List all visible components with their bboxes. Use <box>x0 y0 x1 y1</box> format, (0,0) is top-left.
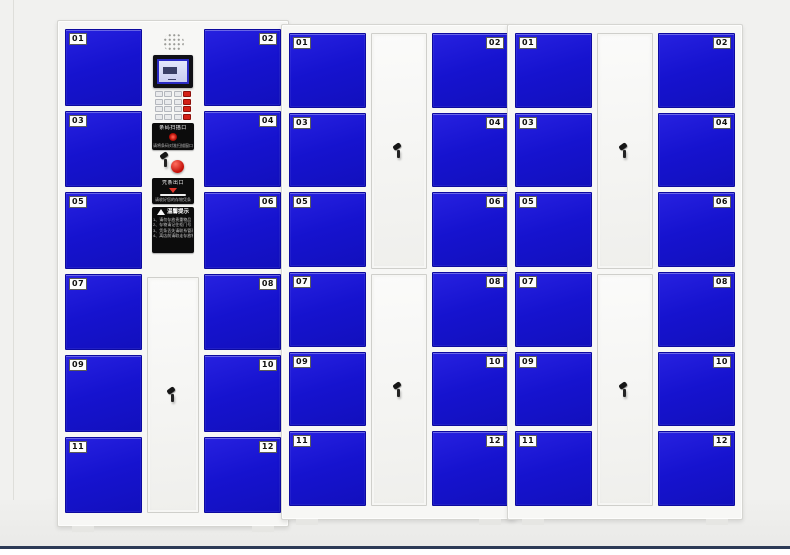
locker-door-04[interactable]: 04 <box>658 113 735 188</box>
locker-door-09[interactable]: 09 <box>65 355 142 432</box>
door-number-tag: 11 <box>293 435 311 447</box>
keypad <box>155 91 192 120</box>
locker-door-03[interactable]: 03 <box>65 111 142 188</box>
left-door-column: 01 03 05 07 09 11 <box>289 33 366 506</box>
door-number-tag: 09 <box>69 359 87 371</box>
lower-service-door[interactable] <box>371 274 427 507</box>
right-door-column: 02 04 06 08 10 12 <box>204 29 281 513</box>
receipt-outlet-label: 凭条出口 请收好您的存物凭条 <box>152 178 194 204</box>
control-column: 条码扫描口 请将条码对准扫描窗口 凭条出口 请收好您的存物凭条 <box>147 29 199 513</box>
speaker-icon <box>163 33 184 52</box>
keypad-key[interactable] <box>164 114 172 120</box>
locker-door-11[interactable]: 11 <box>515 431 592 506</box>
locker-cabinet-1: 01 03 05 07 09 11 <box>57 20 289 527</box>
door-number-tag: 06 <box>713 196 731 208</box>
door-number-tag: 02 <box>713 37 731 49</box>
keypad-key-red[interactable] <box>183 91 191 97</box>
keypad-key[interactable] <box>174 106 182 112</box>
keypad-key[interactable] <box>155 114 163 120</box>
right-door-column: 02 04 06 08 10 12 <box>658 33 735 506</box>
keypad-key[interactable] <box>155 106 163 112</box>
key-lock[interactable] <box>618 383 630 399</box>
tips-line: 4、离店前请取走存放物品 <box>153 233 193 239</box>
door-number-tag: 11 <box>69 441 87 453</box>
left-door-column: 01 03 05 07 09 11 <box>65 29 142 513</box>
lock-and-button-row <box>147 153 199 175</box>
display-screen <box>153 55 193 88</box>
locker-door-07[interactable]: 07 <box>289 272 366 347</box>
keypad-key-red[interactable] <box>183 99 191 105</box>
scanner-glow-icon <box>169 133 177 141</box>
door-number-tag: 04 <box>486 117 504 129</box>
locker-door-09[interactable]: 09 <box>515 352 592 427</box>
locker-door-07[interactable]: 07 <box>65 274 142 351</box>
door-number-tag: 07 <box>69 278 87 290</box>
keypad-key[interactable] <box>155 99 163 105</box>
screen-content <box>157 59 189 84</box>
locker-door-10[interactable]: 10 <box>432 352 509 427</box>
door-number-tag: 08 <box>713 276 731 288</box>
door-number-tag: 11 <box>519 435 537 447</box>
keypad-key[interactable] <box>174 91 182 97</box>
barcode-scanner-label: 条码扫描口 请将条码对准扫描窗口 <box>152 123 194 150</box>
keypad-key[interactable] <box>164 99 172 105</box>
receipt-sub-text: 请收好您的存物凭条 <box>153 197 193 202</box>
tips-header: 温馨提示 <box>153 209 193 216</box>
receipt-slot <box>160 194 186 196</box>
door-number-tag: 02 <box>259 33 277 45</box>
locker-door-06[interactable]: 06 <box>432 192 509 267</box>
keypad-key[interactable] <box>174 114 182 120</box>
upper-service-door[interactable] <box>597 33 653 269</box>
service-column <box>371 33 427 506</box>
locker-door-02[interactable]: 02 <box>204 29 281 106</box>
locker-door-12[interactable]: 12 <box>204 437 281 514</box>
locker-door-08[interactable]: 08 <box>432 272 509 347</box>
door-grid: 01 03 05 07 09 11 02 04 06 08 10 12 <box>515 33 735 506</box>
product-photo: 01 03 05 07 09 11 <box>0 0 790 555</box>
locker-door-06[interactable]: 06 <box>658 192 735 267</box>
keypad-key[interactable] <box>164 106 172 112</box>
door-number-tag: 10 <box>259 359 277 371</box>
locker-door-05[interactable]: 05 <box>289 192 366 267</box>
door-number-tag: 12 <box>259 441 277 453</box>
arrow-down-icon <box>169 188 177 193</box>
locker-door-08[interactable]: 08 <box>658 272 735 347</box>
door-grid: 01 03 05 07 09 11 <box>65 29 281 513</box>
door-number-tag: 04 <box>713 117 731 129</box>
locker-door-02[interactable]: 02 <box>658 33 735 108</box>
door-number-tag: 01 <box>69 33 87 45</box>
locker-door-03[interactable]: 03 <box>289 113 366 188</box>
door-number-tag: 12 <box>486 435 504 447</box>
locker-door-05[interactable]: 05 <box>515 192 592 267</box>
bottom-white-strip <box>0 549 790 555</box>
key-lock[interactable] <box>166 388 178 404</box>
door-number-tag: 02 <box>486 37 504 49</box>
locker-door-03[interactable]: 03 <box>515 113 592 188</box>
door-number-tag: 10 <box>713 356 731 368</box>
tips-title: 温馨提示 <box>167 209 189 216</box>
key-lock[interactable] <box>392 383 404 399</box>
door-number-tag: 01 <box>293 37 311 49</box>
door-number-tag: 07 <box>519 276 537 288</box>
receipt-label-text: 凭条出口 <box>153 180 193 186</box>
keypad-key[interactable] <box>164 91 172 97</box>
door-number-tag: 06 <box>259 196 277 208</box>
locker-cabinet-2: 01 03 05 07 09 11 02 04 06 08 10 12 <box>281 24 516 520</box>
key-lock[interactable] <box>392 144 404 160</box>
door-number-tag: 10 <box>486 356 504 368</box>
locker-door-08[interactable]: 08 <box>204 274 281 351</box>
door-number-tag: 04 <box>259 115 277 127</box>
tips-label: 温馨提示 1、请勿存放贵重物品 2、存物请记住柜门号 3、凭条丢失请联系管理员 … <box>152 207 194 253</box>
locker-door-12[interactable]: 12 <box>432 431 509 506</box>
keypad-key-red[interactable] <box>183 114 191 120</box>
locker-door-01[interactable]: 01 <box>289 33 366 108</box>
locker-door-10[interactable]: 10 <box>204 355 281 432</box>
key-lock[interactable] <box>618 144 630 160</box>
door-number-tag: 05 <box>69 196 87 208</box>
keypad-key-red[interactable] <box>183 106 191 112</box>
lower-service-door[interactable] <box>597 274 653 507</box>
door-number-tag: 09 <box>519 356 537 368</box>
door-number-tag: 07 <box>293 276 311 288</box>
door-number-tag: 08 <box>486 276 504 288</box>
door-number-tag: 03 <box>519 117 537 129</box>
warning-triangle-icon <box>157 209 165 215</box>
right-door-column: 02 04 06 08 10 12 <box>432 33 509 506</box>
control-panel: 条码扫描口 请将条码对准扫描窗口 凭条出口 请收好您的存物凭条 <box>147 29 199 272</box>
tips-line: 2、存物请记住柜门号 <box>153 222 193 228</box>
locker-door-02[interactable]: 02 <box>432 33 509 108</box>
locker-door-06[interactable]: 06 <box>204 192 281 269</box>
door-number-tag: 12 <box>713 435 731 447</box>
door-number-tag: 01 <box>519 37 537 49</box>
locker-cabinet-3: 01 03 05 07 09 11 02 04 06 08 10 12 <box>507 24 743 520</box>
upper-service-door[interactable] <box>371 33 427 269</box>
locker-door-10[interactable]: 10 <box>658 352 735 427</box>
door-number-tag: 09 <box>293 356 311 368</box>
left-door-column: 01 03 05 07 09 11 <box>515 33 592 506</box>
backdrop-edge-line <box>13 0 14 506</box>
locker-door-04[interactable]: 04 <box>432 113 509 188</box>
door-grid: 01 03 05 07 09 11 02 04 06 08 10 12 <box>289 33 508 506</box>
locker-door-01[interactable]: 01 <box>515 33 592 108</box>
keypad-key[interactable] <box>155 91 163 97</box>
locker-door-12[interactable]: 12 <box>658 431 735 506</box>
locker-door-01[interactable]: 01 <box>65 29 142 106</box>
keypad-key[interactable] <box>174 99 182 105</box>
door-number-tag: 05 <box>519 196 537 208</box>
emergency-button[interactable] <box>171 160 184 173</box>
scanner-label-text: 条码扫描口 <box>153 125 193 131</box>
locker-door-09[interactable]: 09 <box>289 352 366 427</box>
service-column <box>597 33 653 506</box>
locker-door-11[interactable]: 11 <box>65 437 142 514</box>
key-lock[interactable] <box>159 153 171 169</box>
door-number-tag: 05 <box>293 196 311 208</box>
locker-door-11[interactable]: 11 <box>289 431 366 506</box>
door-number-tag: 03 <box>69 115 87 127</box>
scanner-sub-text: 请将条码对准扫描窗口 <box>153 143 193 148</box>
maintenance-door[interactable] <box>147 277 199 513</box>
door-number-tag: 08 <box>259 278 277 290</box>
door-number-tag: 03 <box>293 117 311 129</box>
locker-door-04[interactable]: 04 <box>204 111 281 188</box>
locker-door-05[interactable]: 05 <box>65 192 142 269</box>
door-number-tag: 06 <box>486 196 504 208</box>
locker-door-07[interactable]: 07 <box>515 272 592 347</box>
